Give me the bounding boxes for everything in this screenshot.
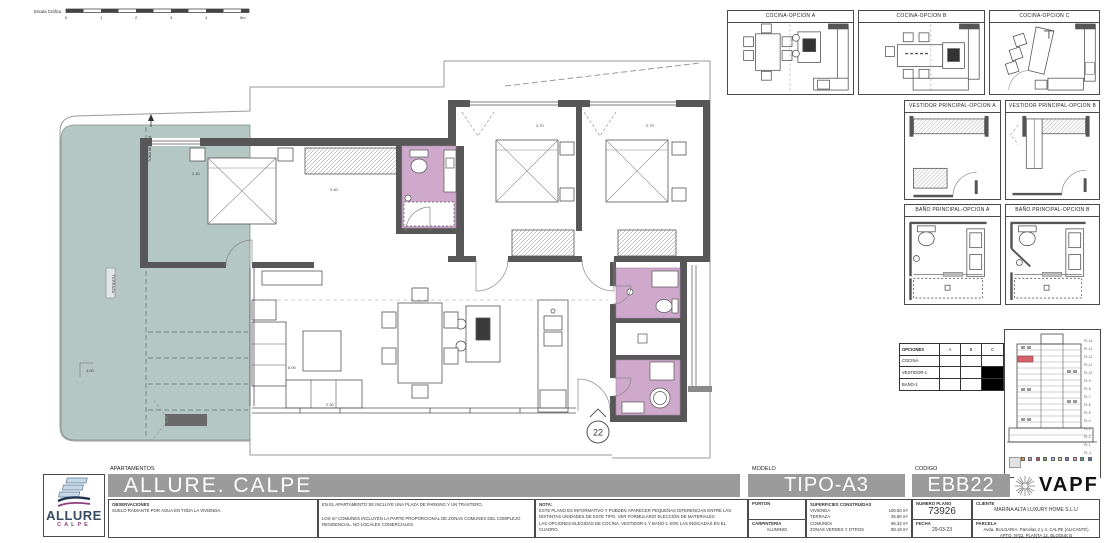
observaciones-box: OBSERVACIONES SUELO RADIANTE POR AGUA EN… <box>108 499 318 538</box>
scale-tick: 4 <box>205 15 208 20</box>
vanity-1 <box>444 150 456 192</box>
allure-building-icon <box>54 475 94 509</box>
floor-plan-sheet: Escala Gráfica 0 1 2 3 4 5m <box>0 0 1104 543</box>
parcela-line-2: APTO. Nº22, PLANTA 12, BLOQUE B <box>976 533 1096 539</box>
legend-swatch <box>1058 457 1062 461</box>
cliente-value: MARINA ALTA LUXURY HOME S.L.U <box>976 507 1096 514</box>
north-arrow-icon <box>148 114 154 121</box>
scale-tick: 2 <box>135 15 138 20</box>
panel-title: COCINA-OPCION B <box>859 11 984 23</box>
panel-title: COCINA-OPCION A <box>728 11 853 23</box>
terrace-planter <box>165 414 207 426</box>
floor-label: PL.11 <box>1084 363 1101 367</box>
scale-tick: 3 <box>170 15 173 20</box>
panel-cocina-b: COCINA-OPCION B <box>858 10 985 95</box>
legend-swatch <box>1073 457 1077 461</box>
bar-counter <box>1028 27 1054 74</box>
options-cell <box>940 379 961 391</box>
side-table <box>252 300 276 320</box>
fecha-value: 29-03-23 <box>916 527 968 534</box>
floor-label: PL.10 <box>1084 371 1101 375</box>
codigo-value-bar: EBB22 <box>912 474 1010 497</box>
vapf-wordmark: VAPF <box>1039 474 1099 497</box>
logo-wordmark: ALLURE <box>46 509 102 522</box>
floor-label: PL.5 <box>1084 411 1101 415</box>
panel-title: VESTIDOR PRINCIPAL-OPCION B <box>1006 101 1099 113</box>
panel-bano-b: BAÑO PRINCIPAL-OPCION B <box>1005 204 1100 305</box>
nota-box: NOTA: ESTE PLANO ES INFORMATIVO Y PUEDEN… <box>535 499 748 538</box>
options-cell <box>961 367 982 379</box>
chair <box>444 348 458 364</box>
options-header-c: C <box>982 344 1003 356</box>
options-row-bano: BAÑO-1 <box>900 379 1003 391</box>
floor-label: PL.14 <box>1084 339 1101 343</box>
dim: 6.00 <box>288 365 297 370</box>
panel-title: VESTIDOR PRINCIPAL-OPCION A <box>905 101 1000 113</box>
shower-1 <box>404 202 454 226</box>
door-bed2 <box>476 259 508 291</box>
carpinteria-value: ALUMINIO <box>752 527 802 533</box>
chair <box>382 348 396 364</box>
elevation-legend <box>1021 457 1099 463</box>
building-elevation-key: PL.14PL.13PL.12PL.11PL.10PL.9PL.8PL.7PL.… <box>1004 329 1101 478</box>
door-bed3 <box>582 259 614 291</box>
floor-label: PL.2 <box>1084 435 1101 439</box>
toilet-tank <box>410 150 428 157</box>
floor-label: PL.13 <box>1084 347 1101 351</box>
toilet-icon <box>918 232 934 246</box>
logo-subtitle: CALPE <box>57 523 91 529</box>
legend-swatch <box>1043 457 1047 461</box>
vapf-logo: VAPF <box>1014 474 1100 497</box>
dining-table <box>755 34 780 70</box>
legend-swatch <box>1088 457 1092 461</box>
panel-cocina-c: COCINA-OPCION C <box>989 10 1100 95</box>
coffee-table <box>303 331 341 371</box>
options-cell <box>961 356 982 368</box>
options-cell <box>961 379 982 391</box>
cliente-label: CLIENTE <box>976 501 994 506</box>
vapf-star-icon <box>1014 475 1036 497</box>
terrace-label: TERRAZA <box>111 275 116 294</box>
panel-cocina-a: COCINA-OPCION A <box>727 10 854 95</box>
scale-tick: 1 <box>100 15 103 20</box>
options-cell <box>940 356 961 368</box>
legend-swatch <box>1080 457 1084 461</box>
floor-label: PL.7 <box>1084 395 1101 399</box>
options-table: OPCIONES A B C COCINA VESTIDOR-1 BAÑO-1 <box>899 343 1004 391</box>
toilet-1 <box>411 159 427 173</box>
options-cell <box>982 367 1003 379</box>
nota-text-2: LAS OPCIONES ELEGIDAS DE COCINA, VESTIDO… <box>539 521 744 533</box>
wardrobe-master <box>305 148 397 174</box>
apartamentos-label: APARTAMENTOS <box>110 466 155 472</box>
options-cell <box>940 367 961 379</box>
codigo-label: CODIGO <box>915 466 937 472</box>
nota-text-1: ESTE PLANO ES INFORMATIVO Y PUEDEN APARE… <box>539 508 744 520</box>
carpinteria-box: PORTON CARPINTERIA ALUMINIO <box>748 499 806 538</box>
legend-swatch <box>1021 457 1025 461</box>
floor-label: PL.4 <box>1084 419 1101 423</box>
sofa <box>252 322 286 386</box>
scale-bar: Escala Gráfica 0 1 2 3 4 5m <box>34 3 264 23</box>
modelo-label: MODELO <box>752 466 776 472</box>
panel-title: BAÑO PRINCIPAL-OPCION B <box>1006 205 1099 217</box>
floor-label: PL.1 <box>1084 443 1101 447</box>
numero-plano-value: 73926 <box>916 507 968 517</box>
laundry-box <box>638 334 647 343</box>
options-header-a: A <box>940 344 961 356</box>
floor-label: PL.8 <box>1084 387 1101 391</box>
dim: 2.40 <box>192 171 201 176</box>
superficies-box: SUPERFICIES CONSTRUIDAS VIVIENDA106.50 m… <box>806 499 912 538</box>
brand-logo: ALLURE CALPE <box>43 474 105 537</box>
superficie-row: ZONAS VERDES Y OTROS88.18 m² <box>810 527 908 533</box>
elevation-highlight <box>1018 356 1033 362</box>
carpinteria-label: CARPINTERIA <box>752 521 781 526</box>
scale-tick: 5m <box>240 15 246 20</box>
floor-label: PL.-1 <box>1084 451 1101 455</box>
modelo-value-bar: TIPO-A3 <box>748 474 905 497</box>
floor-label: PL.6 <box>1084 403 1101 407</box>
dim: 2.70 <box>536 123 545 128</box>
chair <box>412 385 428 398</box>
dim: 2.30 <box>326 402 335 407</box>
toilet-2 <box>656 300 672 313</box>
legend-swatch <box>1028 457 1032 461</box>
incluye-box: EN EL APARTAMENTO SE INCLUYE UNA PLAZA D… <box>318 499 535 538</box>
porton-label: PORTON <box>752 501 770 506</box>
dim: 2.70 <box>646 123 655 128</box>
legend-swatch <box>1036 457 1040 461</box>
panel-vestidor-a: VESTIDOR PRINCIPAL-OPCION A <box>904 100 1001 200</box>
project-title-bar: ALLURE. CALPE <box>108 474 740 497</box>
panel-title: BAÑO PRINCIPAL-OPCION A <box>905 205 1000 217</box>
living-kitchen-furniture <box>252 271 568 412</box>
options-header: OPCIONES <box>900 344 940 356</box>
floor-plan: TERRAZA 4.50 TOMA DE AGUA <box>30 55 720 470</box>
wardrobe-bed2 <box>512 230 574 256</box>
cabinet <box>650 362 674 380</box>
options-row-cocina: COCINA <box>900 356 1003 368</box>
floor-label: PL.9 <box>1084 379 1101 383</box>
drain-symbol <box>405 195 411 201</box>
chair <box>382 312 396 328</box>
scale-bar-label: Escala Gráfica <box>34 9 62 14</box>
unit-number: 22 <box>593 428 603 438</box>
incluye-text-2: LOS m² COMUNES INCLUYEN LA PARTE PROPORC… <box>322 516 531 528</box>
chair <box>412 288 428 301</box>
dim-terrace: 4.50 <box>86 368 95 373</box>
legend-swatch <box>1065 457 1069 461</box>
floor-label: PL.12 <box>1084 355 1101 359</box>
sideboard <box>262 271 322 285</box>
dining-table <box>897 45 942 67</box>
scale-tick: 0 <box>65 15 68 20</box>
toilet-icon <box>1019 232 1035 246</box>
vanity-2 <box>652 271 678 287</box>
plano-fecha-box: NUMERO PLANO 73926 FECHA 29-03-23 <box>912 499 972 538</box>
dim: 2.40 <box>330 187 339 192</box>
toilet-tank <box>917 226 935 232</box>
panel-vestidor-b: VESTIDOR PRINCIPAL-OPCION B <box>1005 100 1100 200</box>
parcela-label: PARCELA <box>976 521 996 526</box>
options-header-b: B <box>961 344 982 356</box>
options-row-vestidor: VESTIDOR-1 <box>900 367 1003 379</box>
observaciones-text: SUELO RADIANTE POR AGUA EN TODA LA VIVIE… <box>112 508 314 514</box>
wardrobe-bed3 <box>618 230 676 256</box>
cliente-parcela-box: CLIENTE MARINA ALTA LUXURY HOME S.L.U PA… <box>972 499 1100 538</box>
elevation-floor-labels: PL.14PL.13PL.12PL.11PL.10PL.9PL.8PL.7PL.… <box>1084 339 1101 455</box>
chair <box>444 312 458 328</box>
floor-label: PL.3 <box>1084 427 1101 431</box>
legend-swatch <box>1051 457 1055 461</box>
sofa <box>286 380 362 408</box>
options-cell <box>982 379 1003 391</box>
panel-bano-a: BAÑO PRINCIPAL-OPCION A <box>904 204 1001 305</box>
legend-title-box <box>1009 457 1021 468</box>
panel-title: COCINA-OPCION C <box>990 11 1099 23</box>
options-cell <box>982 356 1003 368</box>
dining-table <box>398 303 442 383</box>
incluye-text-1: EN EL APARTAMENTO SE INCLUYE UNA PLAZA D… <box>322 502 531 508</box>
fecha-label: FECHA <box>916 521 931 526</box>
